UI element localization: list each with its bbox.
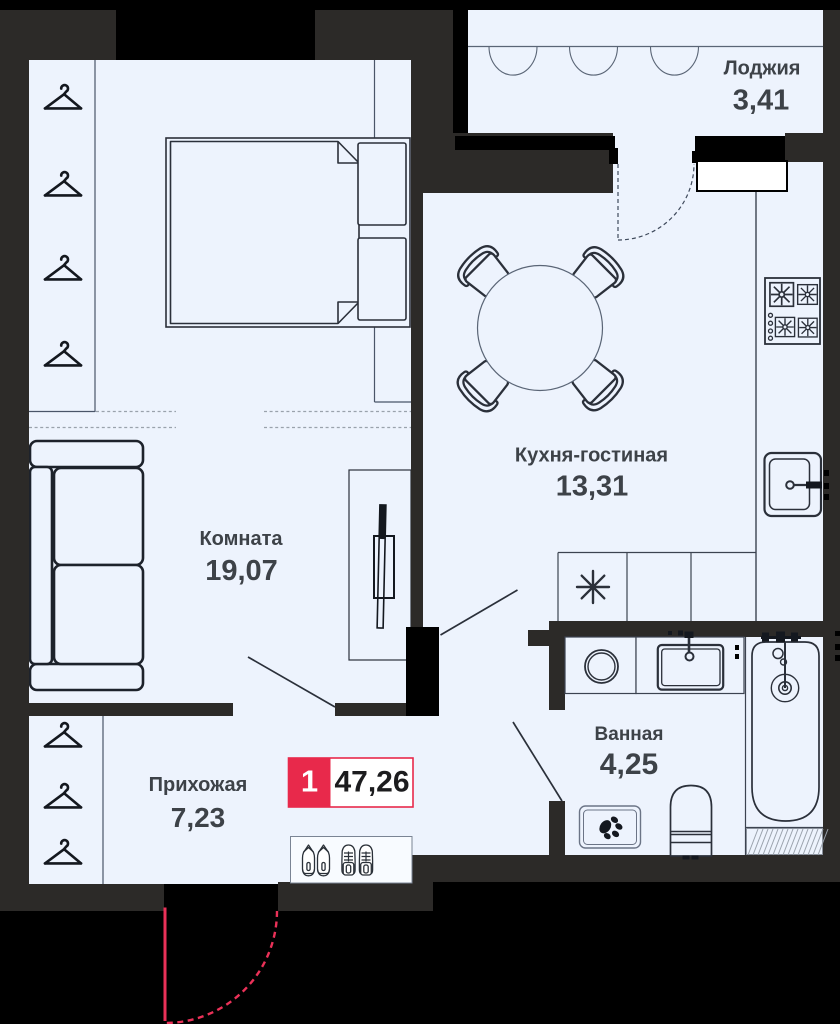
svg-text:47,26: 47,26 <box>334 766 409 799</box>
svg-text:Комната: Комната <box>199 528 283 550</box>
svg-text:Прихожая: Прихожая <box>149 774 248 796</box>
svg-text:Ванная: Ванная <box>595 724 664 745</box>
svg-text:Кухня-гостиная: Кухня-гостиная <box>515 445 668 467</box>
svg-text:4,25: 4,25 <box>600 748 658 781</box>
svg-text:13,31: 13,31 <box>556 471 629 503</box>
svg-text:Лоджия: Лоджия <box>724 58 801 80</box>
svg-text:3,41: 3,41 <box>733 85 789 117</box>
svg-text:19,07: 19,07 <box>205 555 278 587</box>
svg-text:7,23: 7,23 <box>171 802 226 833</box>
svg-text:1: 1 <box>301 764 318 799</box>
